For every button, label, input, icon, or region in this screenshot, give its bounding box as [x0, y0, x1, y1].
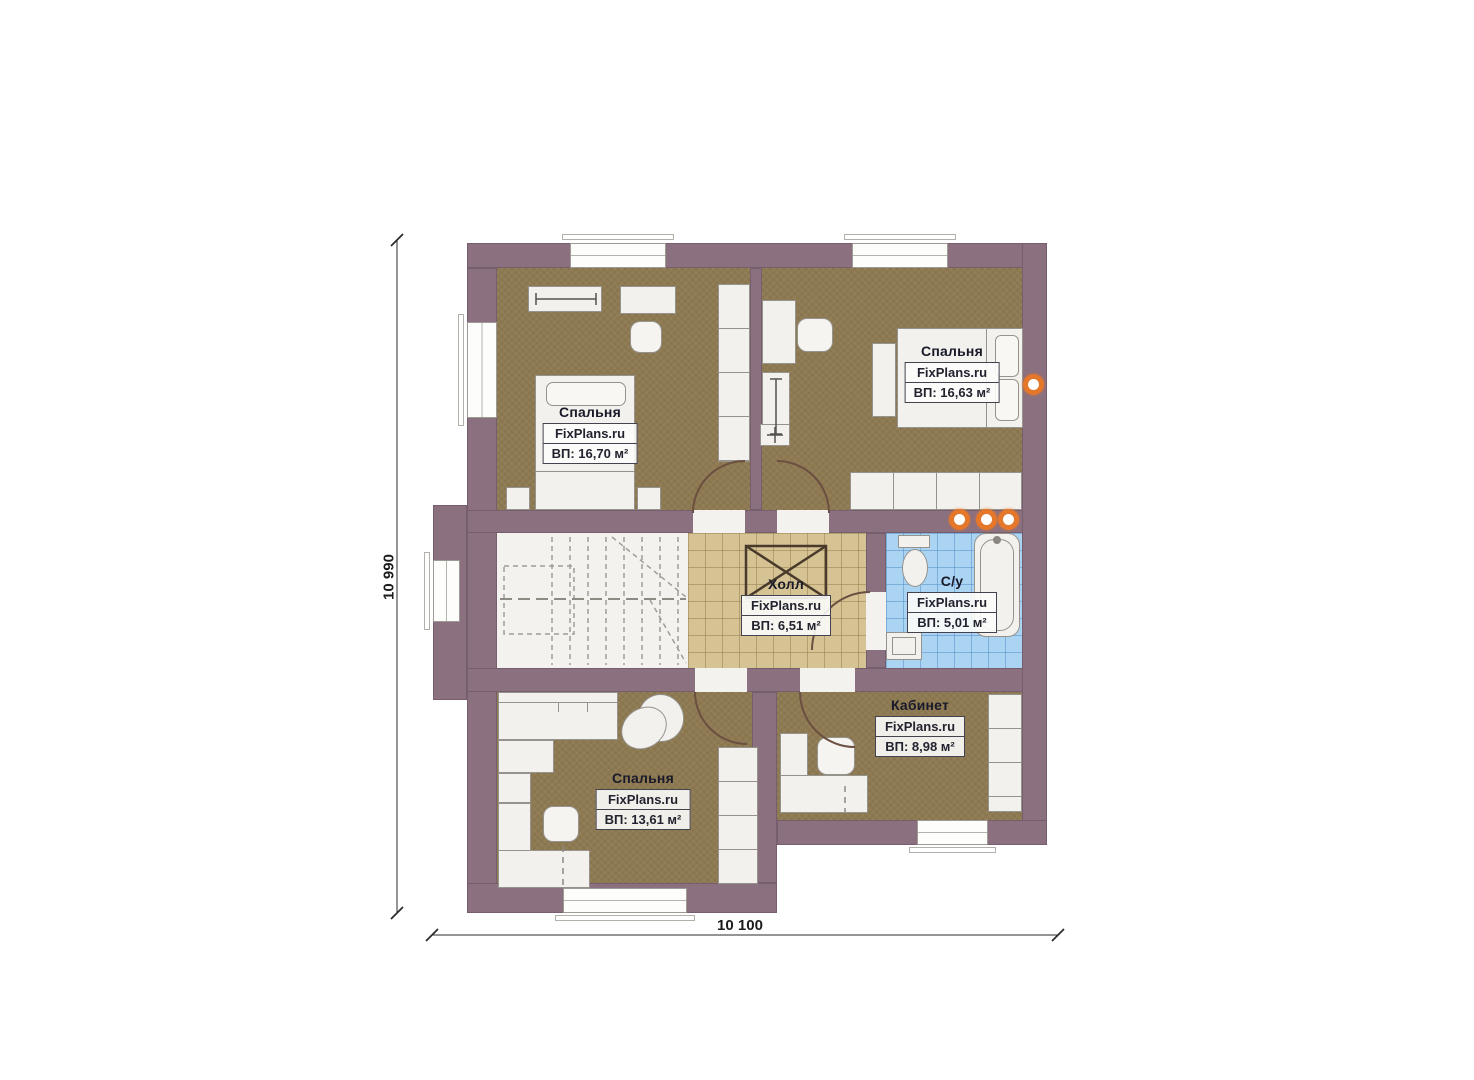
door-opening-bathroom — [866, 592, 886, 650]
area-label: ВП: 8,98 м² — [876, 736, 964, 756]
room-name: Спальня — [559, 404, 621, 420]
window-sill — [844, 234, 956, 240]
sink — [886, 632, 922, 660]
wardrobe — [850, 472, 1022, 510]
bedside-table — [637, 487, 661, 510]
pillow — [546, 382, 626, 406]
chair — [817, 737, 855, 775]
room-name: Холл — [768, 576, 804, 592]
wall-partition-top-bedrooms — [750, 268, 762, 510]
room-label-bathroom: С/у FixPlans.ru ВП: 5,01 м² — [907, 573, 997, 633]
floor-plan-canvas: Спальня FixPlans.ru ВП: 16,70 м² Спальня… — [0, 0, 1474, 1080]
room-label-bedroom-bottom: Спальня FixPlans.ru ВП: 13,61 м² — [596, 770, 691, 830]
faucet — [993, 536, 1001, 544]
wall-lamp-icon — [949, 509, 970, 530]
dresser — [498, 740, 554, 773]
dresser — [498, 773, 531, 803]
room-label-box: FixPlans.ru ВП: 16,63 м² — [905, 362, 1000, 403]
area-label: ВП: 16,63 м² — [906, 382, 999, 402]
room-label-box: FixPlans.ru ВП: 8,98 м² — [875, 716, 965, 757]
wall-lamp-icon — [1023, 374, 1044, 395]
window-sill — [562, 234, 674, 240]
wardrobe — [988, 694, 1022, 812]
brand-label: FixPlans.ru — [597, 790, 690, 809]
chair — [543, 806, 579, 842]
room-label-office: Кабинет FixPlans.ru ВП: 8,98 м² — [875, 697, 965, 757]
toilet-tank — [898, 535, 930, 548]
wall-middle-bottom — [467, 668, 1047, 692]
area-label: ВП: 16,70 м² — [544, 443, 637, 463]
brand-label: FixPlans.ru — [908, 593, 996, 612]
room-floor-stairwell — [497, 533, 688, 668]
room-name: С/у — [941, 573, 963, 589]
window-left-bedroom — [467, 322, 497, 418]
wall-lamp-icon — [998, 509, 1019, 530]
window-sill — [909, 847, 996, 853]
dimension-width-label: 10 100 — [717, 917, 763, 934]
desk — [780, 775, 868, 813]
window-sill — [555, 915, 695, 921]
window-stairwell — [433, 560, 460, 622]
door-opening-bedroom-bottom — [695, 668, 747, 692]
wall-top — [467, 243, 1047, 268]
brand-label: FixPlans.ru — [876, 717, 964, 736]
room-label-bedroom-top-right: Спальня FixPlans.ru ВП: 16,63 м² — [905, 343, 1000, 403]
brand-label: FixPlans.ru — [742, 596, 830, 615]
plant-box — [760, 424, 790, 446]
room-name: Спальня — [612, 770, 674, 786]
bedside-bench — [872, 343, 896, 417]
window-bedroom-top-right — [852, 243, 948, 268]
room-label-box: FixPlans.ru ВП: 13,61 м² — [596, 789, 691, 830]
wall-right — [1022, 243, 1047, 845]
desk — [498, 850, 590, 888]
room-label-bedroom-top-left: Спальня FixPlans.ru ВП: 16,70 м² — [543, 404, 638, 464]
door-opening-office — [800, 668, 855, 692]
sofa-seat-divider — [558, 702, 559, 712]
window-sill — [424, 552, 430, 630]
area-label: ВП: 13,61 м² — [597, 809, 690, 829]
room-label-box: FixPlans.ru ВП: 16,70 м² — [543, 423, 638, 464]
room-label-box: FixPlans.ru ВП: 6,51 м² — [741, 595, 831, 636]
blanket-line — [536, 471, 634, 472]
sofa-seat-divider — [587, 702, 588, 712]
door-opening-bedroom-top-left — [693, 510, 745, 533]
chair — [797, 318, 833, 352]
wall-lamp-icon — [976, 509, 997, 530]
sink-basin — [892, 637, 916, 655]
sofa — [498, 692, 618, 740]
dimension-height-label: 10 990 — [381, 554, 398, 600]
room-label-box: FixPlans.ru ВП: 5,01 м² — [907, 592, 997, 633]
window-office — [917, 820, 988, 845]
room-name: Спальня — [921, 343, 983, 359]
window-bedroom-bottom — [563, 888, 687, 913]
bench — [528, 286, 602, 312]
chair — [630, 321, 662, 353]
room-label-hall: Холл FixPlans.ru ВП: 6,51 м² — [741, 576, 831, 636]
area-label: ВП: 5,01 м² — [908, 612, 996, 632]
desk — [762, 300, 796, 364]
room-name: Кабинет — [891, 697, 949, 713]
wardrobe — [718, 747, 758, 884]
wardrobe — [718, 284, 750, 462]
desk — [620, 286, 676, 314]
desk — [498, 803, 531, 851]
brand-label: FixPlans.ru — [544, 424, 637, 443]
wall-bottom-office — [777, 820, 1047, 845]
bedside-table — [506, 487, 530, 510]
window-sill — [458, 314, 464, 426]
brand-label: FixPlans.ru — [906, 363, 999, 382]
door-opening-bedroom-top-right — [777, 510, 829, 533]
window-bedroom-top-left — [570, 243, 666, 268]
area-label: ВП: 6,51 м² — [742, 615, 830, 635]
